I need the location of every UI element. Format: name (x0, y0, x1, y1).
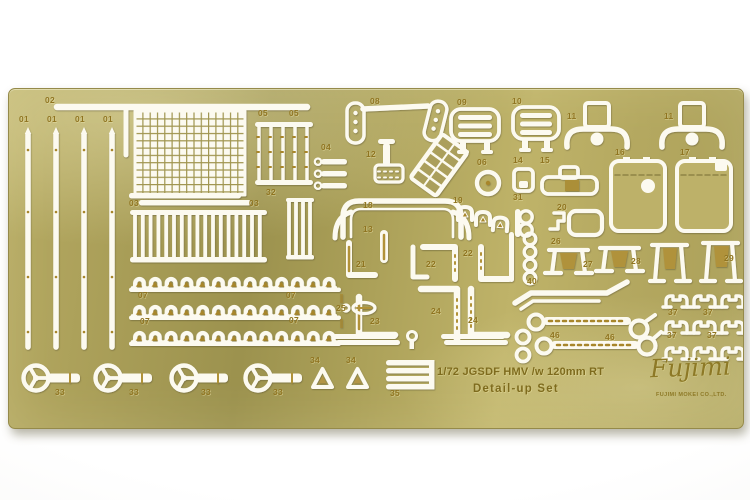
part-label-33: 33 (55, 388, 65, 397)
part-label-27: 27 (583, 260, 593, 269)
part-label-31: 31 (513, 193, 523, 202)
part-label-26: 26 (551, 237, 561, 246)
part-label-24: 24 (431, 307, 441, 316)
part-label-21: 21 (356, 260, 366, 269)
part-number-labels: 0201010101050508091011110412161706141532… (9, 89, 743, 428)
part-label-19: 19 (453, 196, 463, 205)
part-label-09: 09 (457, 98, 467, 107)
part-label-40: 40 (527, 277, 537, 286)
part-label-17: 17 (680, 148, 690, 157)
part-label-37: 37 (668, 308, 678, 317)
part-label-02: 02 (45, 96, 55, 105)
part-label-13: 13 (363, 225, 373, 234)
part-label-05: 05 (258, 109, 268, 118)
fujimi-logo: Fujimi (650, 352, 732, 384)
part-label-33: 33 (201, 388, 211, 397)
part-label-18: 18 (363, 201, 373, 210)
part-label-01: 01 (19, 115, 29, 124)
part-label-33: 33 (129, 388, 139, 397)
part-label-29: 29 (724, 254, 734, 263)
part-label-11: 11 (664, 112, 674, 121)
part-label-05: 05 (289, 109, 299, 118)
part-label-25: 25 (336, 304, 346, 313)
part-label-06: 06 (477, 158, 487, 167)
part-label-28: 28 (631, 257, 641, 266)
part-label-37: 37 (703, 308, 713, 317)
part-label-46: 46 (605, 333, 615, 342)
part-label-22: 22 (426, 260, 436, 269)
part-label-46: 46 (550, 331, 560, 340)
part-label-07: 07 (289, 316, 299, 325)
part-label-32: 32 (266, 188, 276, 197)
part-label-34: 34 (310, 356, 320, 365)
part-label-10: 10 (512, 97, 522, 106)
part-label-33: 33 (273, 388, 283, 397)
part-label-22: 22 (463, 249, 473, 258)
product-subtitle: Detail-up Set (473, 383, 559, 395)
part-label-01: 01 (47, 115, 57, 124)
part-label-20: 20 (557, 203, 567, 212)
product-title: 1/72 JGSDF HMV /w 120mm RT (437, 366, 604, 378)
part-label-34: 34 (346, 356, 356, 365)
part-label-04: 04 (321, 143, 331, 152)
part-label-03: 03 (129, 199, 139, 208)
part-label-37: 37 (707, 331, 717, 340)
part-label-08: 08 (370, 97, 380, 106)
part-label-07: 07 (286, 291, 296, 300)
part-label-11: 11 (567, 112, 577, 121)
part-label-07: 07 (140, 317, 150, 326)
part-label-07: 07 (138, 291, 148, 300)
photo-etch-brass-sheet: 0201010101050508091011110412161706141532… (8, 88, 744, 429)
part-label-01: 01 (103, 115, 113, 124)
part-label-23: 23 (370, 317, 380, 326)
part-label-12: 12 (366, 150, 376, 159)
part-label-35: 35 (390, 389, 400, 398)
fujimi-company-name: FUJIMI MOKEI CO.,LTD. (656, 392, 727, 398)
part-label-03: 03 (249, 199, 259, 208)
part-label-01: 01 (75, 115, 85, 124)
part-label-14: 14 (513, 156, 523, 165)
part-label-15: 15 (540, 156, 550, 165)
part-label-37: 37 (667, 331, 677, 340)
product-photo: 0201010101050508091011110412161706141532… (0, 0, 750, 500)
part-label-16: 16 (615, 148, 625, 157)
part-label-24: 24 (468, 316, 478, 325)
